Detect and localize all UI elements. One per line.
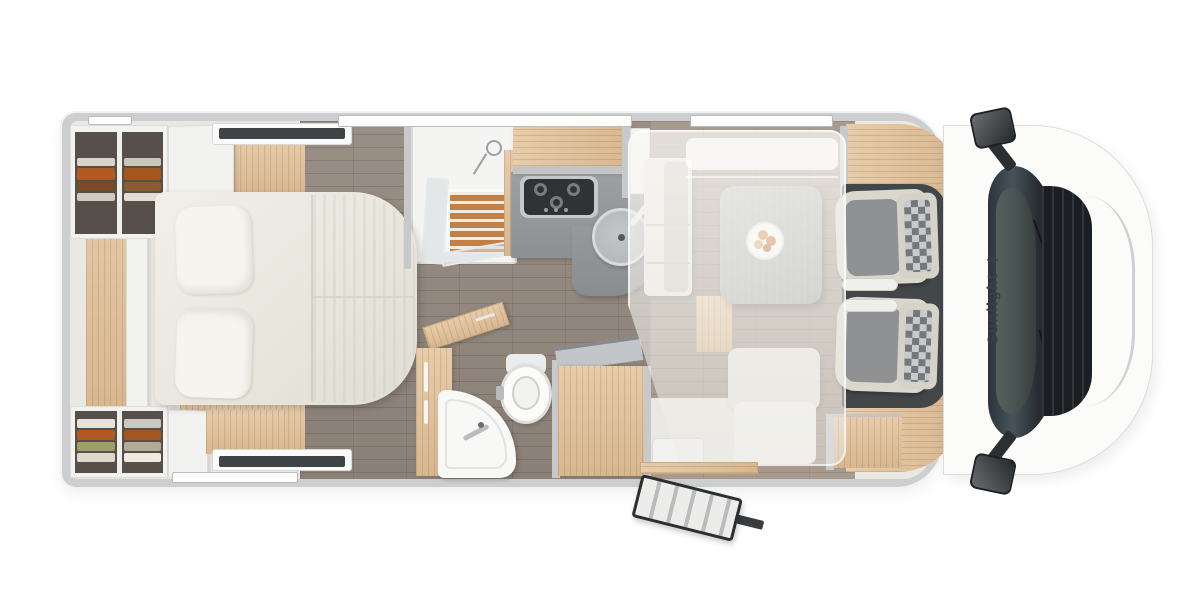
- clothes-stack: [124, 168, 161, 180]
- double-bed: [155, 192, 417, 405]
- towel-rail: [424, 362, 428, 392]
- shelf-divider: [117, 411, 122, 473]
- clothes-stack: [124, 453, 161, 462]
- shower-head-icon: [486, 140, 502, 156]
- duvet: [311, 195, 415, 402]
- kitchen-cabinet-edge: [513, 166, 631, 174]
- clothes-stack: [77, 419, 115, 428]
- windshield-glass: [996, 188, 1036, 414]
- seat-cushion: [845, 306, 902, 384]
- burner-icon: [550, 196, 563, 209]
- side-mirror-top: [968, 108, 1028, 172]
- wardrobe-bottom-door: [168, 409, 208, 478]
- toilet-bowl: [500, 364, 552, 424]
- towel-rail: [424, 400, 428, 424]
- clothes-stack: [77, 158, 115, 166]
- passenger-armrest: [842, 299, 898, 312]
- seat-headrest: [896, 302, 939, 389]
- clothes-stack: [77, 442, 115, 451]
- clothes-stack: [124, 158, 161, 166]
- brand-logo-icon: ✳: [985, 252, 1002, 265]
- clothes-stack: [124, 419, 161, 428]
- shower-hose: [473, 153, 487, 174]
- clothes-stack: [124, 182, 161, 191]
- side-mirror-bottom: [968, 430, 1028, 494]
- clothes-stack: [77, 430, 115, 440]
- gas-hob: [520, 176, 598, 218]
- floorplan-stage: Sunlight ✳: [0, 0, 1200, 600]
- pillow: [174, 307, 253, 400]
- driver-seat: [834, 188, 941, 286]
- clothes-stack: [124, 430, 161, 440]
- mirror-head: [969, 106, 1018, 150]
- wardrobe-top-interior: [75, 132, 163, 234]
- bench-block-bottom: [206, 410, 286, 454]
- shower-cabin: [411, 124, 517, 264]
- mirror-head: [969, 452, 1018, 496]
- window-slot: [690, 115, 833, 127]
- rooflight-slot: [219, 456, 345, 467]
- shower-wall: [404, 121, 411, 269]
- rooflight: [212, 449, 352, 471]
- clothes-stack: [124, 442, 161, 451]
- duvet-split-line: [313, 296, 413, 298]
- window-slot: [338, 115, 632, 127]
- toilet-seat-ring: [512, 376, 540, 410]
- seat-cushion: [845, 199, 902, 277]
- headrest-pattern: [904, 310, 932, 383]
- headrest-pattern: [904, 200, 932, 273]
- window-slot: [172, 472, 298, 483]
- clothes-stack: [77, 193, 115, 201]
- entry-door-sill: [640, 462, 758, 474]
- hob-knob: [564, 208, 568, 212]
- hood-grille: [1042, 186, 1092, 416]
- driver-armrest: [842, 278, 898, 291]
- burner-icon: [567, 183, 580, 196]
- pillow: [174, 205, 253, 296]
- door-handle: [475, 313, 495, 322]
- cab-body: [944, 126, 1152, 474]
- basin-drain: [478, 422, 484, 428]
- sink-drain: [618, 234, 625, 241]
- toilet: [498, 354, 554, 430]
- rooflight-slot: [219, 128, 345, 139]
- wardrobe-bottom: [70, 406, 168, 478]
- brand-lettering: Sunlight ✳: [985, 239, 1002, 359]
- rooflight: [212, 123, 352, 145]
- cabinet-side-wall: [644, 366, 651, 476]
- seat-headrest: [896, 192, 939, 279]
- drop-down-bed-line: [686, 176, 838, 178]
- wheel-arch-cabinet: [558, 366, 646, 476]
- hob-knob: [544, 208, 548, 212]
- shelf-divider: [117, 132, 122, 234]
- hob-knob: [554, 208, 558, 212]
- window-slot: [88, 116, 132, 125]
- clothes-stack: [77, 182, 115, 191]
- brand-name: Sunlight: [985, 273, 1002, 345]
- clothes-stack: [77, 453, 115, 462]
- flush-panel: [496, 386, 504, 400]
- drop-down-bed-edge: [686, 138, 838, 170]
- bumper-contour: [1086, 196, 1135, 406]
- wardrobe-top: [70, 125, 168, 239]
- hob-panel: [524, 179, 594, 215]
- burner-icon: [534, 183, 547, 196]
- wardrobe-bottom-interior: [75, 411, 163, 473]
- clothes-stack: [77, 168, 115, 180]
